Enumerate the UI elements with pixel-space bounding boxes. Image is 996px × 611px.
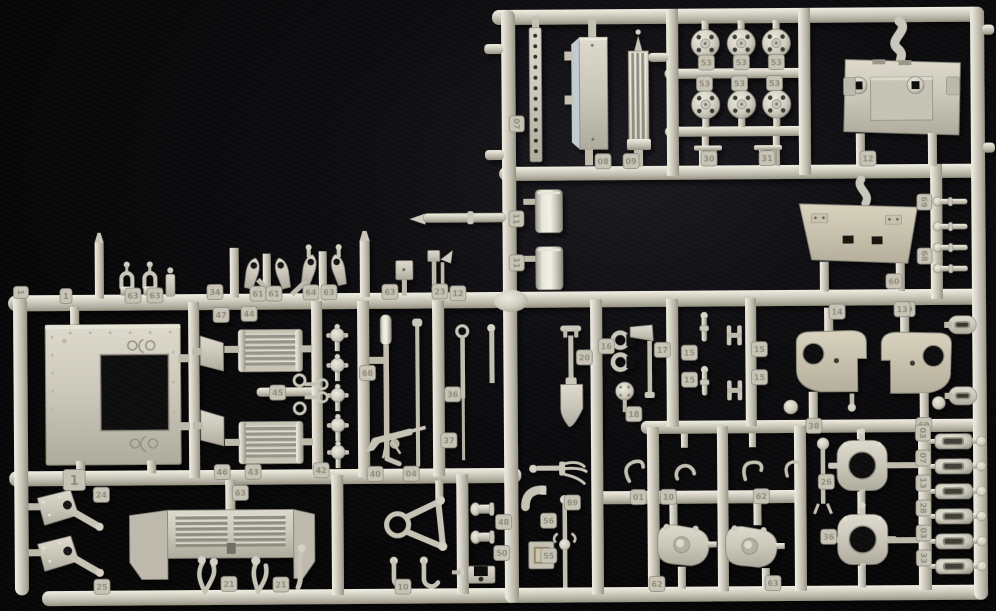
part-number-tag: 62	[753, 489, 769, 504]
part-number-tag: 63	[232, 485, 248, 500]
turret-ring-flange-parts	[828, 428, 920, 588]
part-number-tag: 63	[765, 576, 781, 591]
svg-text:26: 26	[821, 478, 833, 487]
part-number-tag: 26	[818, 474, 834, 489]
svg-text:16: 16	[601, 342, 613, 351]
svg-text:56: 56	[543, 517, 555, 526]
svg-text:1: 1	[70, 474, 79, 489]
svg-text:17: 17	[657, 346, 668, 355]
svg-text:63: 63	[384, 288, 395, 297]
part-number-tag: 10	[660, 489, 676, 504]
part-number-tag: 46	[214, 464, 230, 479]
part-number-tag: 63	[321, 285, 337, 300]
part-number-tag: 62	[649, 576, 665, 591]
part-number-tag: 15	[682, 372, 698, 387]
part-number-tag: 12	[860, 151, 876, 166]
part-number-tag: 33	[916, 550, 931, 566]
part-number-tag: 09	[623, 154, 639, 169]
glacis-plate-parts	[783, 307, 952, 422]
clasp-pin-parts	[700, 312, 743, 401]
svg-text:10: 10	[663, 493, 675, 502]
part-number-tag: 56	[540, 513, 556, 528]
svg-text:1: 1	[16, 290, 25, 296]
part-number-tag: 24	[93, 487, 109, 502]
part-number-tag: 89	[564, 495, 580, 510]
svg-text:28: 28	[918, 502, 927, 514]
shovel-part	[560, 325, 583, 426]
photo-stage: 0708095353535353533031126968601911112312…	[0, 0, 996, 611]
part-number-tag: 53	[733, 55, 749, 70]
svg-text:43: 43	[248, 468, 259, 477]
svg-text:21: 21	[275, 580, 287, 589]
ladder-strip-part	[529, 16, 542, 162]
part-number-tag: 03	[915, 425, 930, 441]
part-number-tag: 43	[245, 464, 261, 479]
svg-text:60: 60	[888, 277, 900, 286]
svg-text:63: 63	[127, 292, 138, 301]
part-number-tag: 30	[701, 151, 717, 166]
part-number-tag: 61	[250, 286, 266, 301]
svg-text:12: 12	[862, 154, 873, 163]
svg-text:38: 38	[808, 422, 820, 431]
part-number-tag: 34	[207, 284, 223, 299]
svg-text:44: 44	[243, 310, 255, 319]
part-number-tag: 45	[270, 385, 286, 400]
svg-text:53: 53	[769, 79, 780, 88]
svg-text:61: 61	[268, 290, 280, 299]
part-number-tag: 63	[147, 288, 163, 303]
part-number-tag: 53	[766, 76, 782, 91]
part-number-tag: 31	[759, 151, 775, 166]
svg-text:89: 89	[567, 498, 579, 507]
part-number-tag: 60	[886, 274, 902, 289]
part-number-tag: 37	[441, 433, 457, 448]
tool-rod-parts	[362, 314, 496, 467]
svg-text:53: 53	[736, 58, 747, 67]
part-number-tag: 17	[654, 342, 670, 357]
svg-text:23: 23	[434, 287, 445, 296]
svg-text:63: 63	[235, 489, 246, 498]
part-number-tag: 12	[450, 286, 466, 301]
svg-text:18: 18	[628, 410, 640, 419]
part-number-tag: 16	[598, 339, 614, 354]
svg-text:62: 62	[651, 580, 662, 589]
svg-text:20: 20	[579, 353, 591, 362]
svg-text:25: 25	[96, 583, 108, 592]
svg-text:11: 11	[512, 257, 521, 269]
part-number-tag: 28	[916, 500, 931, 516]
svg-text:50: 50	[496, 549, 508, 558]
a-frame-tow-part	[386, 480, 447, 551]
svg-text:07: 07	[512, 118, 521, 129]
svg-text:69: 69	[919, 196, 928, 208]
part-number-tag: 53	[696, 76, 712, 91]
part-number-tag: 10	[395, 579, 411, 594]
svg-text:63: 63	[149, 291, 160, 300]
pitchfork-part	[529, 461, 586, 483]
part-number-tag: 25	[94, 579, 110, 594]
svg-text:53: 53	[699, 80, 710, 89]
gun-barrel-rod-part	[409, 211, 505, 225]
part-number-tag: 13	[916, 475, 931, 491]
svg-text:68: 68	[362, 369, 374, 378]
rear-hull-plate-part	[843, 21, 961, 167]
svg-text:12: 12	[452, 289, 463, 298]
svg-text:36: 36	[447, 390, 459, 399]
part-number-tag: 63	[125, 288, 141, 303]
part-number-tag: 08	[595, 154, 611, 169]
part-number-tag: 1	[13, 286, 28, 298]
part-number-tag: 55	[541, 548, 557, 563]
svg-text:13: 13	[918, 477, 927, 488]
part-number-tag: 1	[60, 288, 72, 303]
part-number-tag: 47	[213, 307, 229, 322]
svg-text:24: 24	[96, 491, 108, 500]
square-hatch-panel-part	[45, 306, 190, 474]
part-number-tag: 48	[495, 514, 511, 529]
svg-text:1: 1	[63, 292, 69, 301]
lug-parts	[470, 503, 494, 544]
part-number-tag: 15	[751, 342, 767, 357]
svg-text:62: 62	[756, 492, 767, 501]
part-number-tag: 1	[63, 469, 85, 490]
part-number-tag: 23	[432, 284, 448, 299]
knob-column-parts	[326, 324, 349, 468]
part-number-tag: 21	[273, 577, 289, 592]
part-number-tag: 07	[509, 116, 524, 132]
part-number-tag: 50	[494, 545, 510, 560]
part-number-tag: 03	[916, 525, 931, 541]
svg-text:21: 21	[223, 580, 235, 589]
part-number-tag: 11	[509, 211, 524, 227]
part-number-tag: 64	[303, 285, 319, 300]
part-number-tag: 38	[806, 418, 822, 433]
part-number-tag: 53	[731, 76, 747, 91]
part-number-tag: 36	[445, 387, 461, 402]
ribbed-column-part	[626, 29, 669, 167]
svg-text:13: 13	[896, 305, 907, 314]
svg-text:14: 14	[831, 308, 843, 317]
svg-text:53: 53	[701, 59, 712, 68]
part-number-tag: 63	[382, 284, 398, 299]
elbow-pipe-part	[525, 486, 546, 507]
svg-text:11: 11	[511, 213, 520, 225]
svg-text:53: 53	[734, 79, 745, 88]
part-number-tag: 68	[917, 248, 932, 264]
part-number-tag: 15	[681, 345, 697, 360]
part-number-tag: 40	[367, 466, 383, 481]
part-number-tag: 61	[266, 286, 282, 301]
svg-text:30: 30	[703, 154, 715, 163]
svg-text:31: 31	[761, 154, 773, 163]
part-number-tag: 20	[576, 350, 592, 365]
svg-text:61: 61	[252, 290, 264, 299]
sprue-photo: 0708095353535353533031126968601911112312…	[0, 0, 996, 611]
part-number-tag: 42	[313, 463, 329, 478]
svg-text:46: 46	[217, 468, 229, 477]
part-number-tag: 11	[509, 255, 524, 271]
part-number-tag: 07	[916, 450, 931, 466]
part-number-tag: 18	[626, 406, 642, 421]
svg-text:47: 47	[215, 311, 226, 320]
svg-text:36: 36	[823, 533, 835, 542]
part-number-tag: 13	[894, 302, 910, 317]
svg-text:68: 68	[920, 250, 929, 262]
part-number-tag: 21	[221, 576, 237, 591]
svg-text:03: 03	[919, 527, 928, 538]
svg-text:08: 08	[597, 157, 609, 166]
part-number-tag: 44	[241, 306, 257, 321]
svg-text:64: 64	[305, 288, 317, 297]
svg-text:03: 03	[918, 427, 927, 438]
part-number-tag: 01	[630, 489, 646, 504]
svg-text:48: 48	[498, 518, 510, 527]
part-number-tag: 15	[751, 370, 767, 385]
equipment-box-part	[564, 19, 608, 165]
part-number-tag: 69	[917, 194, 932, 210]
svg-text:15: 15	[684, 349, 696, 358]
svg-text:40: 40	[370, 470, 382, 479]
svg-text:15: 15	[754, 345, 766, 354]
engine-deck-panel-part	[129, 479, 315, 579]
svg-text:07: 07	[918, 452, 927, 463]
svg-text:15: 15	[684, 376, 696, 385]
road-wheel-hub-parts	[691, 20, 791, 167]
svg-text:53: 53	[771, 58, 782, 67]
svg-text:01: 01	[633, 493, 645, 502]
part-number-tag: 53	[698, 55, 714, 70]
svg-text:04: 04	[406, 470, 418, 479]
svg-text:45: 45	[272, 388, 284, 397]
svg-text:42: 42	[316, 466, 327, 475]
svg-text:34: 34	[209, 288, 221, 297]
part-number-tag: 53	[768, 54, 784, 69]
svg-text:15: 15	[754, 373, 766, 382]
part-number-tag: 04	[403, 466, 419, 481]
svg-text:63: 63	[767, 579, 778, 588]
svg-text:10: 10	[397, 583, 409, 592]
svg-text:55: 55	[543, 552, 555, 561]
drive-bracket-parts	[28, 490, 104, 578]
part-number-tag: 36	[821, 529, 837, 544]
svg-text:63: 63	[323, 288, 334, 297]
svg-text:37: 37	[443, 436, 454, 445]
part-number-tag: 14	[829, 304, 845, 319]
c-clamp-parts	[613, 333, 636, 370]
svg-text:09: 09	[625, 157, 637, 166]
fuel-drum-parts	[523, 190, 563, 290]
svg-text:33: 33	[919, 552, 928, 563]
part-number-tag: 68	[359, 365, 375, 380]
